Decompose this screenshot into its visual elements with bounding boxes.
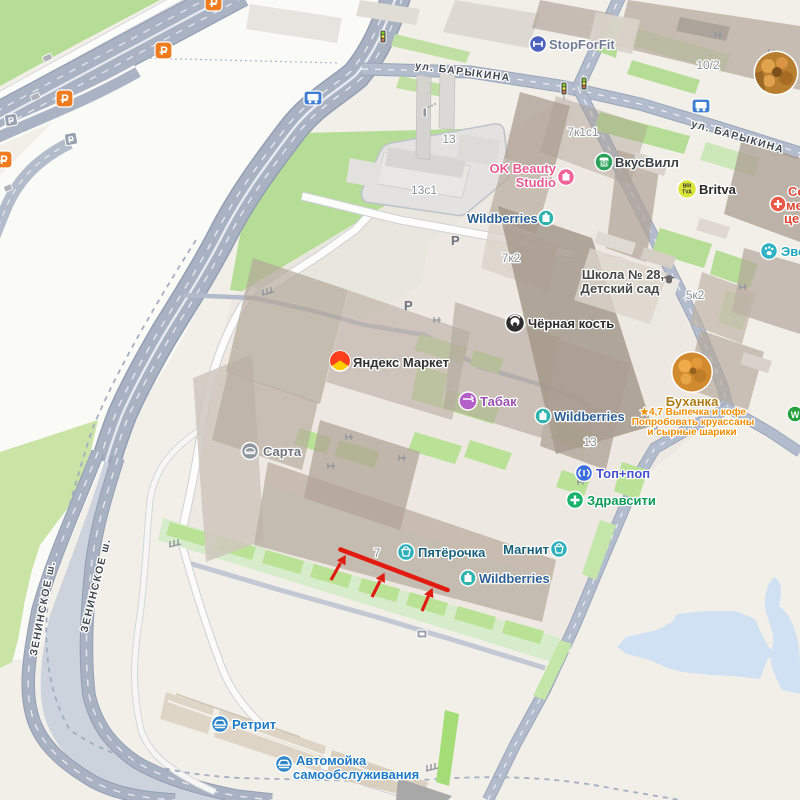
svg-text:Ретрит: Ретрит bbox=[232, 717, 276, 732]
svg-text:Wildberries: Wildberries bbox=[554, 409, 625, 424]
svg-text:13: 13 bbox=[583, 435, 597, 449]
svg-text:Детский сад: Детский сад bbox=[581, 281, 661, 296]
svg-text:Studio: Studio bbox=[516, 175, 556, 190]
svg-text:Яндекс Маркет: Яндекс Маркет bbox=[353, 355, 449, 370]
svg-text:Сарта: Сарта bbox=[263, 444, 302, 459]
svg-text:Школа № 28,: Школа № 28, bbox=[582, 267, 664, 282]
svg-text:Магнит: Магнит bbox=[503, 542, 549, 557]
svg-text:7к2: 7к2 bbox=[502, 251, 521, 265]
svg-text:ВВ: ВВ bbox=[599, 161, 609, 168]
svg-text:Топ+поп: Топ+поп bbox=[596, 466, 650, 481]
svg-text:13: 13 bbox=[442, 132, 456, 146]
svg-text:Эве: Эве bbox=[781, 244, 800, 259]
svg-text:Се: Се bbox=[788, 184, 800, 199]
svg-text:Здравсити: Здравсити bbox=[587, 493, 656, 508]
svg-text:7: 7 bbox=[374, 546, 381, 560]
svg-text:10/2: 10/2 bbox=[696, 58, 720, 72]
svg-text:P: P bbox=[451, 233, 460, 248]
svg-text:7к1с1: 7к1с1 bbox=[567, 125, 599, 139]
svg-text:W: W bbox=[791, 410, 800, 420]
svg-text:Автомойка: Автомойка bbox=[296, 753, 367, 768]
svg-text:Табак: Табак bbox=[480, 394, 517, 409]
svg-text:ВкусВилл: ВкусВилл bbox=[615, 155, 679, 170]
svg-text:Чёрная кость: Чёрная кость bbox=[528, 316, 614, 331]
svg-text:самообслуживания: самообслуживания bbox=[293, 767, 419, 782]
svg-text:це: це bbox=[784, 211, 799, 226]
svg-text:Britva: Britva bbox=[699, 182, 737, 197]
svg-text:и сырные шарики: и сырные шарики bbox=[647, 427, 736, 438]
svg-text:OK Beauty: OK Beauty bbox=[490, 161, 557, 176]
svg-text:TVA: TVA bbox=[682, 190, 692, 196]
svg-text:P: P bbox=[404, 298, 413, 313]
svg-text:Wildberries: Wildberries bbox=[479, 571, 550, 586]
svg-text:P: P bbox=[210, 0, 218, 10]
svg-text:StopForFit: StopForFit bbox=[549, 37, 615, 52]
svg-text:Пятёрочка: Пятёрочка bbox=[418, 545, 486, 560]
svg-text:13с1: 13с1 bbox=[411, 183, 437, 197]
svg-text:5к2: 5к2 bbox=[686, 288, 705, 302]
svg-text:Wildberries: Wildberries bbox=[467, 211, 538, 226]
